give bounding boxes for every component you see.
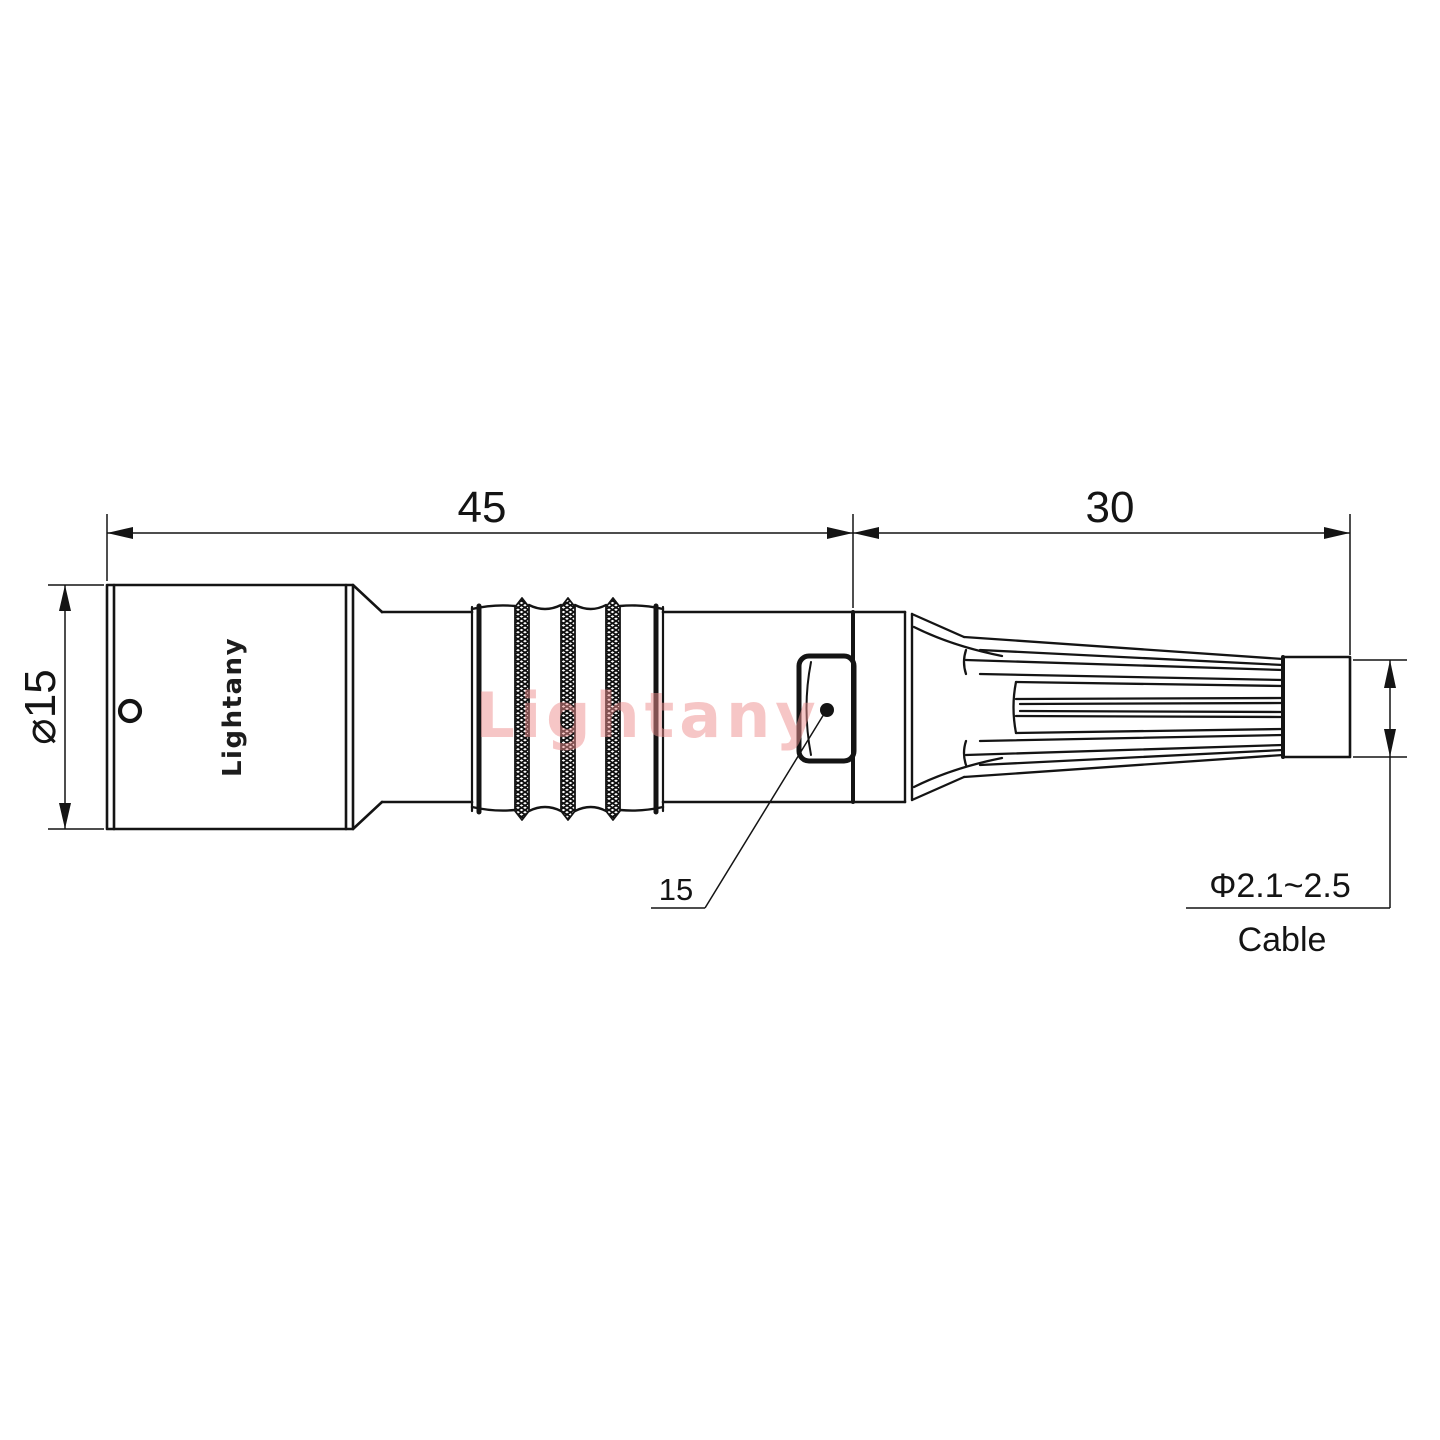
watermark: Lightany: [475, 679, 820, 752]
nut-leader-value: 15: [659, 872, 693, 907]
cable-caption: Cable: [1238, 921, 1327, 959]
dim-30-value: 30: [1086, 483, 1135, 532]
connector-shell: [107, 585, 472, 829]
shell-hole: [120, 701, 140, 721]
dim-diameter-value: ⌀15: [16, 669, 65, 744]
cable-end-cap: [1283, 657, 1350, 757]
strain-relief-boot: [912, 614, 1283, 800]
cable-diameter-range: Φ2.1~2.5: [1209, 867, 1351, 905]
technical-drawing: 45 30 ⌀15 15 Φ2.1~2.5 Cable Lightany Lig…: [0, 0, 1440, 1440]
drawing-sheet: 45 30 ⌀15 15 Φ2.1~2.5 Cable Lightany Lig…: [0, 0, 1440, 1440]
brand-label: Lightany: [218, 637, 248, 777]
dim-45-value: 45: [458, 483, 507, 532]
